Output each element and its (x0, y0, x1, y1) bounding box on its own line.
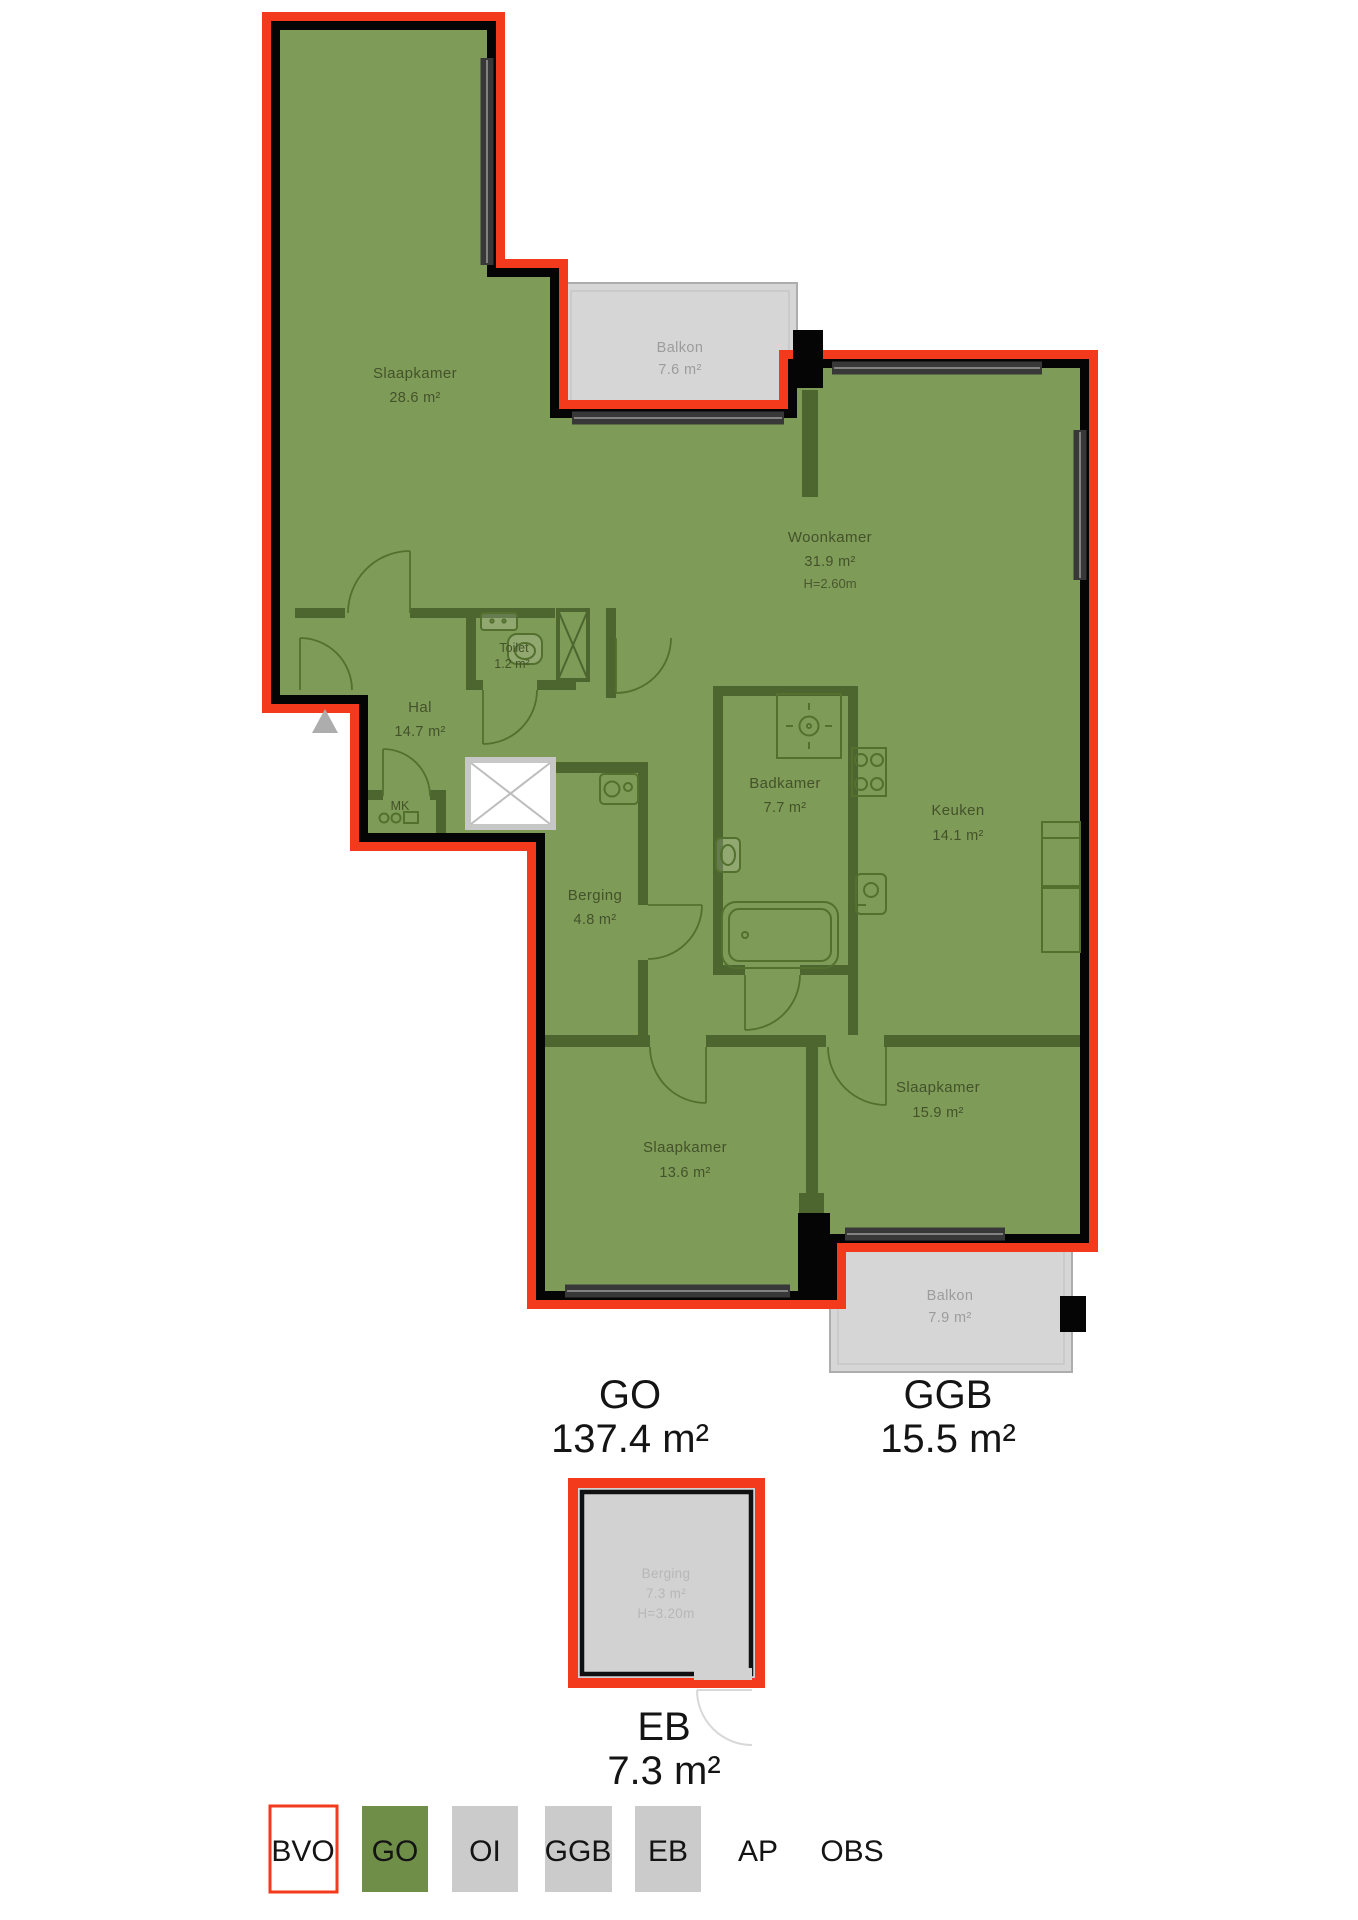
room-area-badkamer: 7.7 m² (764, 800, 807, 816)
legend-label-ap: AP (738, 1835, 778, 1868)
legend-label-eb: EB (648, 1835, 688, 1868)
toilet-sink-icon (481, 613, 517, 630)
room-area-slaapkamer-3: 13.6 m² (659, 1165, 710, 1181)
room-label-balkon-2: Balkon (927, 1288, 974, 1304)
room-label-mk: MK (391, 799, 410, 813)
room-label-keuken: Keuken (931, 802, 984, 819)
legend-label-bvo: BVO (271, 1835, 334, 1868)
summary-go-label: GO (599, 1373, 661, 1417)
room-label-badkamer: Badkamer (749, 775, 821, 792)
room-area-balkon-1: 7.6 m² (658, 362, 702, 378)
room-label-woonkamer: Woonkamer (788, 529, 872, 546)
wall-pillar (793, 330, 823, 388)
legend-label-obs: OBS (820, 1835, 883, 1868)
legend-item-go: GO (362, 1806, 428, 1892)
room-height-externe-berging: H=3.20m (637, 1606, 694, 1621)
legend-item-bvo: BVO (270, 1806, 337, 1892)
room-area-toilet: 1.2 m² (494, 657, 529, 671)
room-label-balkon-1: Balkon (657, 340, 704, 356)
summary-eb-value: 7.3 m² (607, 1749, 720, 1793)
room-area-woonkamer: 31.9 m² (804, 554, 855, 570)
summary-eb-label: EB (637, 1705, 690, 1749)
room-area-keuken: 14.1 m² (932, 828, 983, 844)
floor-plan-page: Slaapkamer 28.6 m² Balkon 7.6 m² Woonkam… (0, 0, 1358, 1920)
legend-label-oi: OI (469, 1835, 501, 1868)
room-area-berging: 4.8 m² (574, 912, 617, 928)
legend: BVO GO OI GGB EB AP OBS (270, 1806, 884, 1892)
summary-ggb-value: 15.5 m² (880, 1417, 1016, 1461)
room-label-slaapkamer-1: Slaapkamer (373, 365, 457, 382)
room-label-externe-berging: Berging (642, 1566, 691, 1581)
room-label-toilet: Toilet (499, 641, 529, 655)
room-height-woonkamer: H=2.60m (803, 576, 856, 591)
legend-label-ggb: GGB (545, 1835, 612, 1868)
room-area-slaapkamer-1: 28.6 m² (389, 390, 440, 406)
room-label-slaapkamer-3: Slaapkamer (643, 1139, 727, 1156)
legend-label-go: GO (372, 1835, 419, 1868)
room-label-berging: Berging (568, 887, 623, 904)
legend-item-ggb: GGB (545, 1806, 612, 1892)
balcony-bottom (830, 1238, 1072, 1372)
bathroom-sink-icon (716, 838, 740, 872)
summary-go-value: 137.4 m² (551, 1417, 709, 1461)
legend-item-eb: EB (635, 1806, 701, 1892)
legend-item-oi: OI (452, 1806, 518, 1892)
floor-plan: Slaapkamer 28.6 m² Balkon 7.6 m² Woonkam… (0, 0, 1358, 1920)
wall-pillar (1060, 1296, 1086, 1332)
room-area-balkon-2: 7.9 m² (928, 1310, 972, 1326)
go-area-fill (280, 30, 1080, 1291)
room-label-hal: Hal (408, 699, 432, 716)
room-area-externe-berging: 7.3 m² (646, 1586, 686, 1601)
summary-ggb-label: GGB (904, 1373, 993, 1417)
shaft-icon (468, 760, 553, 827)
wall-pillar (798, 1213, 830, 1296)
room-area-slaapkamer-2: 15.9 m² (912, 1105, 963, 1121)
room-label-slaapkamer-2: Slaapkamer (896, 1079, 980, 1096)
room-area-hal: 14.7 m² (394, 724, 445, 740)
